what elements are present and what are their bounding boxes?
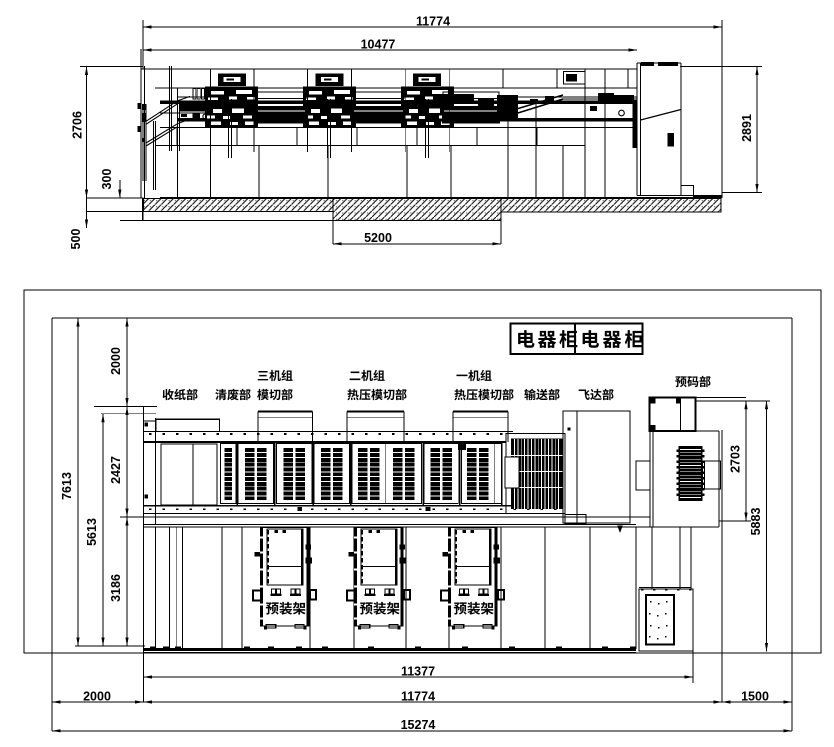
svg-text:2891: 2891 [740,114,754,142]
svg-text:11377: 11377 [401,664,435,678]
svg-text:5613: 5613 [85,518,99,546]
svg-text:2000: 2000 [83,689,111,703]
svg-text:15274: 15274 [401,718,436,732]
svg-text:2427: 2427 [109,456,123,484]
svg-text:300: 300 [100,169,114,190]
svg-text:1500: 1500 [741,689,769,703]
svg-text:2706: 2706 [71,111,85,139]
svg-text:11774: 11774 [401,689,435,703]
svg-text:7613: 7613 [60,472,74,500]
svg-text:5883: 5883 [749,508,763,536]
svg-text:500: 500 [69,229,83,250]
svg-text:5200: 5200 [364,231,392,245]
svg-text:10477: 10477 [361,37,396,51]
svg-text:11774: 11774 [416,14,450,28]
svg-text:2000: 2000 [109,347,123,375]
svg-text:3186: 3186 [109,574,123,602]
svg-text:2703: 2703 [729,445,743,473]
